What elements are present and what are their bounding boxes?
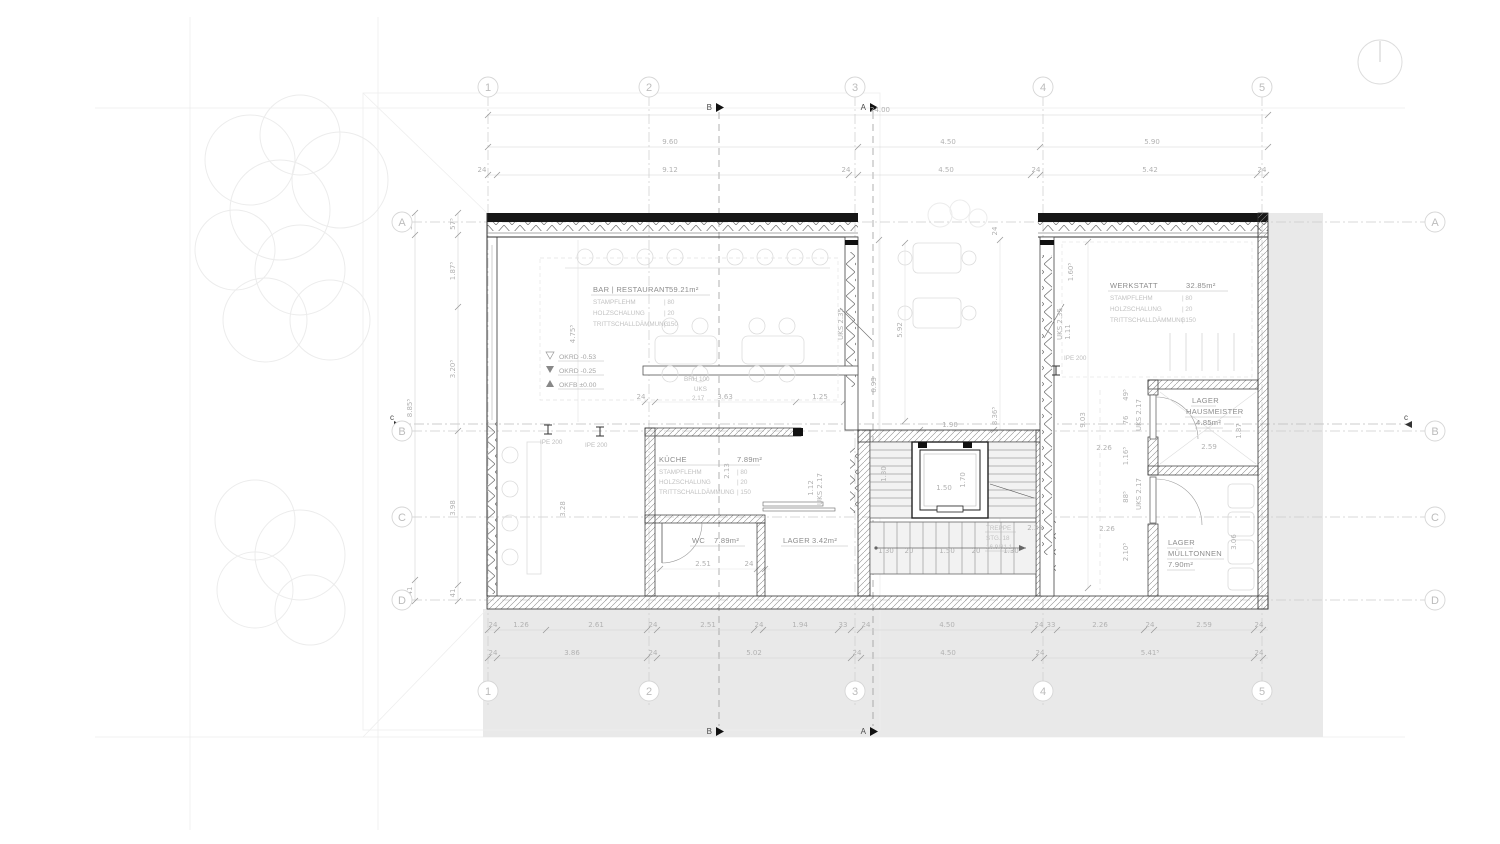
dim-label: 1.12	[807, 480, 815, 496]
dim-label: 3.98	[449, 500, 457, 516]
level-markers: OKRD -0.53 OKRD -0.25 OKFB ±0.00	[546, 352, 604, 389]
dim-label: 9.03	[1079, 412, 1087, 428]
outdoor-table	[913, 298, 961, 328]
lintel	[1040, 240, 1054, 245]
tree	[223, 278, 307, 362]
grid-label-4-bottom: 4	[1040, 686, 1046, 698]
room-title: LAGER	[1192, 396, 1219, 405]
room-label-restaurant: BAR | RESTAURANT 59.21m² STAMPFLEHM | 80…	[591, 285, 710, 328]
dim-label: 3.20⁵	[449, 360, 457, 379]
beam-label: IPE 200	[585, 442, 608, 449]
wall-hausmeister-north	[1148, 380, 1258, 389]
grid-label-c-right: C	[1431, 512, 1439, 524]
dim-label: 24	[755, 621, 764, 629]
grid-label-2-top: 2	[646, 82, 652, 94]
layer-name: HOLZSCHALUNG	[1110, 306, 1162, 313]
dim-label: UKS 2.17	[816, 473, 824, 505]
layer-value: | 150	[664, 321, 678, 328]
grid-label-3-bottom: 3	[852, 686, 858, 698]
i-beam-icon	[544, 425, 552, 434]
dim-label: 1.94	[792, 621, 808, 629]
wall-kitchen-west	[645, 428, 655, 596]
table	[655, 336, 717, 364]
bench	[527, 442, 541, 574]
rooflight-arrows	[1170, 333, 1234, 371]
dim-label: 8.36⁵	[991, 407, 999, 426]
dim-label: 1.70	[959, 472, 967, 488]
dim-label: 24.00	[870, 106, 890, 114]
level-triangle-up-icon	[546, 380, 554, 387]
room-area: 7.89m²	[714, 536, 739, 545]
elevator-door-jamb	[963, 442, 972, 448]
room-title: HAUSMEISTER	[1186, 407, 1244, 416]
level-triangle-outline-icon	[546, 352, 554, 359]
room-title: LAGER	[783, 536, 810, 545]
dim-label: 5.41⁵	[1141, 649, 1160, 657]
level-label: OKRD -0.25	[559, 368, 596, 375]
layer-name: TRITTSCHALLDÄMMUNG	[593, 320, 669, 328]
grid-label-1-top: 1	[485, 82, 491, 94]
dim-label: 1.60⁵	[1067, 263, 1075, 282]
dim-label: 5.42	[1142, 166, 1158, 174]
dim-label: 57⁵	[449, 218, 457, 230]
grid-label-5-bottom: 5	[1259, 686, 1265, 698]
elevator-counterweight	[937, 506, 963, 512]
stair-block	[850, 430, 1056, 596]
grid-label-3-top: 3	[852, 82, 858, 94]
dim-label: 4.50	[939, 621, 955, 629]
table	[742, 336, 804, 364]
dim-label: 1.30	[878, 547, 894, 555]
dim-label: 9.12	[662, 166, 678, 174]
layer-name: TRITTSCHALLDÄMMUNG	[659, 488, 735, 496]
dim-label: 1.90	[942, 421, 958, 429]
dim-label: 4.75⁵	[569, 325, 577, 344]
level-label: OKFB ±0.00	[559, 382, 597, 389]
dim-label: 41	[449, 589, 457, 598]
grid-label-d-right: D	[1431, 595, 1439, 607]
tree	[292, 132, 388, 228]
beam-label: IPE 200	[540, 439, 563, 446]
layer-name: HOLZSCHALUNG	[593, 310, 645, 317]
dim-label: 6.93	[870, 377, 878, 393]
dim-label: 2.51	[700, 621, 716, 629]
room-title: KÜCHE	[659, 455, 687, 464]
dim-label: 5.92	[896, 322, 904, 338]
outdoor-table	[913, 243, 961, 273]
dim-label: 24	[478, 166, 487, 174]
section-label-a-top: A	[861, 103, 867, 112]
wall-insulation-west	[1042, 255, 1052, 555]
dim-label: 3.63	[717, 393, 733, 401]
layer-name: HOLZSCHALUNG	[659, 479, 711, 486]
room-area: 59.21m²	[669, 285, 699, 294]
room-area: 32.85m²	[1186, 281, 1216, 290]
dim-label: 1.30	[880, 466, 888, 482]
dim-label: 24	[1258, 166, 1267, 174]
low-partition-sill	[643, 366, 858, 375]
dimension-chain-top: 24.00 9.60 4.50 5.90 24 9.12 24 4.50 24 …	[478, 106, 1271, 178]
wall-north	[1038, 213, 1268, 222]
section-label-b-top: B	[707, 103, 712, 112]
dim-label: 1.16⁵	[1122, 447, 1130, 466]
dim-label: 1.25	[812, 393, 828, 401]
layer-value: | 20	[737, 479, 748, 486]
wall-muell-west	[1148, 524, 1158, 596]
dim-label: UKS 2.35	[837, 308, 845, 340]
floor-plan-drawing: B A B A c c 24.00 9.60 4.50 5.90 24 9.12…	[0, 0, 1500, 844]
door-leaf	[1150, 395, 1156, 439]
dim-label: 3.28	[559, 501, 567, 517]
tree	[255, 225, 345, 315]
dim-label: 24	[853, 649, 862, 657]
site-paving-east	[1268, 213, 1323, 609]
dim-label: 24	[1036, 649, 1045, 657]
grid-label-5-top: 5	[1259, 82, 1265, 94]
dim-label: 4.50	[940, 649, 956, 657]
room-label-kueche: KÜCHE 7.89m² STAMPFLEHM | 80 HOLZSCHALUN…	[657, 455, 762, 496]
wall-wc-north	[645, 515, 765, 523]
lintel	[845, 240, 858, 245]
grid-label-b-right: B	[1431, 426, 1438, 438]
section-label-c-right: c	[1404, 413, 1408, 422]
dim-label: 2.59	[1201, 443, 1217, 451]
stair-wall-north	[858, 430, 1048, 442]
wall-hausmeister-south	[1148, 466, 1258, 475]
dim-label: 33	[839, 621, 848, 629]
dim-label: 5.90	[1144, 138, 1160, 146]
dim-label: 1.50	[939, 547, 955, 555]
wall-insulation-west	[488, 422, 497, 594]
dim-label: 24	[489, 649, 498, 657]
dim-label: 2.59	[1196, 621, 1212, 629]
grid-label-4-top: 4	[1040, 82, 1046, 94]
dim-label: 2.13	[723, 463, 731, 479]
wall-insulation	[487, 222, 858, 231]
room-title: BAR | RESTAURANT	[593, 285, 670, 294]
section-label-c-left: c	[390, 413, 394, 422]
i-beam-icon	[596, 427, 604, 436]
beam-labels	[544, 366, 1060, 436]
plant	[950, 200, 970, 220]
grid-label-2-bottom: 2	[646, 686, 652, 698]
layer-value: | 20	[664, 310, 675, 317]
stair-flight-left	[870, 442, 912, 518]
layer-name: TRITTSCHALLDÄMMUNG	[1110, 316, 1186, 324]
dim-label: 2.61	[588, 621, 604, 629]
dim-label: 2.26	[1099, 525, 1115, 533]
dim-label: 88⁵	[1122, 491, 1130, 503]
layer-value: | 80	[664, 299, 675, 306]
layer-value: | 80	[1182, 295, 1193, 302]
north-symbol	[1358, 40, 1402, 84]
room-label-lager: LAGER 3.42m²	[781, 536, 848, 546]
room-label-hausmeister: LAGER HAUSMEISTER 4.85m²	[1185, 396, 1244, 428]
dim-label: 24	[1255, 621, 1264, 629]
room-area: 3.42m²	[812, 536, 837, 545]
kitchen-counter	[763, 502, 823, 506]
room-area: 7.90m²	[1168, 560, 1193, 569]
dim-label: 9.60	[662, 138, 678, 146]
layer-value: | 150	[1182, 317, 1196, 324]
sill-height-label: BRH 100	[684, 376, 710, 383]
dim-label: 24	[637, 393, 646, 401]
room-area: 7.89m²	[737, 455, 762, 464]
stair-count: STG. 18	[986, 535, 1010, 542]
uks-value: 2.17	[692, 395, 705, 402]
tree	[230, 160, 330, 260]
room-title: WERKSTATT	[1110, 281, 1158, 290]
dim-label: 20	[905, 547, 914, 555]
level-triangle-filled-icon	[546, 366, 554, 373]
wall-south	[487, 596, 1268, 609]
stair-wall-west	[858, 430, 870, 596]
dimension-chain-left: 57⁵ 8.85⁵ 41 57⁵ 1.87⁵ 3.20⁵ 3.98 41	[406, 210, 461, 604]
layer-name: STAMPFLEHM	[659, 469, 702, 476]
grid-label-d-left: D	[398, 595, 406, 607]
grid-label-c-left: C	[398, 512, 406, 524]
plant	[969, 209, 987, 227]
dim-label: 24	[649, 649, 658, 657]
dim-label: 1.11	[1064, 324, 1072, 340]
dim-label: 4.50	[938, 166, 954, 174]
dim-label: 24	[842, 166, 851, 174]
room-label-wc: WC 7.89m²	[690, 536, 745, 546]
dim-label: 2.26	[1092, 621, 1108, 629]
dim-label: UKS 2.17	[1135, 399, 1143, 431]
room-area: 4.85m²	[1196, 418, 1221, 427]
room-title: MÜLLTONNEN	[1168, 549, 1222, 558]
dim-label: 2.51	[695, 560, 711, 568]
grid-label-a-left: A	[398, 217, 406, 229]
wall-kitchen-north	[645, 428, 801, 436]
room-title: WC	[692, 536, 705, 545]
grid-label-1-bottom: 1	[485, 686, 491, 698]
wall-wc-lager	[757, 523, 765, 596]
layer-value: | 80	[737, 469, 748, 476]
dim-label: 8.85⁵	[406, 399, 414, 418]
dim-label: 20	[972, 547, 981, 555]
dim-label: 1.26	[513, 621, 529, 629]
grid-label-b-left: B	[398, 426, 405, 438]
left-wing-partitions	[540, 258, 858, 596]
dim-label: 4.50	[940, 138, 956, 146]
section-label-a-bottom: A	[861, 727, 867, 736]
dim-label: 24	[1255, 649, 1264, 657]
dim-label: 49⁵	[1122, 389, 1130, 401]
grid-label-a-right: A	[1431, 217, 1439, 229]
dim-label: 24	[862, 621, 871, 629]
elevator-cabin	[920, 450, 980, 510]
wall-north	[487, 213, 858, 222]
wall-east	[1258, 213, 1268, 609]
door-swing-arc	[1156, 479, 1202, 525]
dim-label: 1.87⁵	[449, 262, 457, 281]
dim-label: 24	[649, 621, 658, 629]
section-arrow-c-right-icon	[1405, 421, 1412, 428]
tree	[260, 95, 340, 175]
floor-plan-sheet: B A B A c c 24.00 9.60 4.50 5.90 24 9.12…	[0, 0, 1500, 844]
dim-label: UKS 2.35	[1056, 308, 1064, 340]
layer-name: STAMPFLEHM	[593, 299, 636, 306]
dim-label: 2.35	[1027, 524, 1043, 532]
dim-label: 1.50	[936, 484, 952, 492]
dim-label: 76	[1122, 415, 1130, 424]
plant	[928, 203, 952, 227]
dim-label: 24	[1032, 166, 1041, 174]
layer-value: | 150	[737, 489, 751, 496]
stair-flight-right	[988, 442, 1036, 518]
dim-label: UKS 2.17	[1135, 478, 1143, 510]
dim-label: 1.30	[1003, 547, 1019, 555]
dim-label: 1.87	[1235, 423, 1243, 439]
dim-label: 3.06	[1230, 534, 1238, 550]
dim-label: 24	[745, 560, 754, 568]
section-arrow-b-top-icon	[716, 103, 724, 112]
beam-label: IPE 200	[1064, 355, 1087, 362]
room-label-muelltonnen: LAGER MÜLLTONNEN 7.90m²	[1167, 538, 1224, 570]
kitchen-counter	[763, 508, 835, 511]
dim-label: 24	[1035, 621, 1044, 629]
wall-pier	[793, 428, 803, 436]
dim-label: 3.86	[564, 649, 580, 657]
door-leaf	[1150, 477, 1156, 523]
tree	[215, 480, 295, 560]
dim-label: 5.02	[746, 649, 762, 657]
dim-label: 24	[489, 621, 498, 629]
dim-label: 33	[1047, 621, 1056, 629]
section-label-b-bottom: B	[707, 727, 712, 736]
tree	[290, 280, 370, 360]
tree	[275, 575, 345, 645]
dim-label: 24	[1146, 621, 1155, 629]
dim-label: 2.10⁵	[1122, 543, 1130, 562]
elevator-door-jamb	[918, 442, 927, 448]
uks-label: UKS	[694, 386, 707, 393]
dim-label: 24	[991, 226, 999, 235]
stair-insulation-west	[850, 448, 858, 513]
level-label: OKRD -0.53	[559, 354, 596, 361]
dim-label: 2.26	[1096, 444, 1112, 452]
room-label-werkstatt: WERKSTATT 32.85m² STAMPFLEHM | 80 HOLZSC…	[1108, 281, 1228, 324]
layer-value: | 20	[1182, 306, 1193, 313]
wall-insulation	[1038, 222, 1268, 231]
room-title: LAGER	[1168, 538, 1195, 547]
layer-name: STAMPFLEHM	[1110, 295, 1153, 302]
room-title: TREPPE	[986, 525, 1011, 532]
site-area	[363, 93, 1323, 737]
